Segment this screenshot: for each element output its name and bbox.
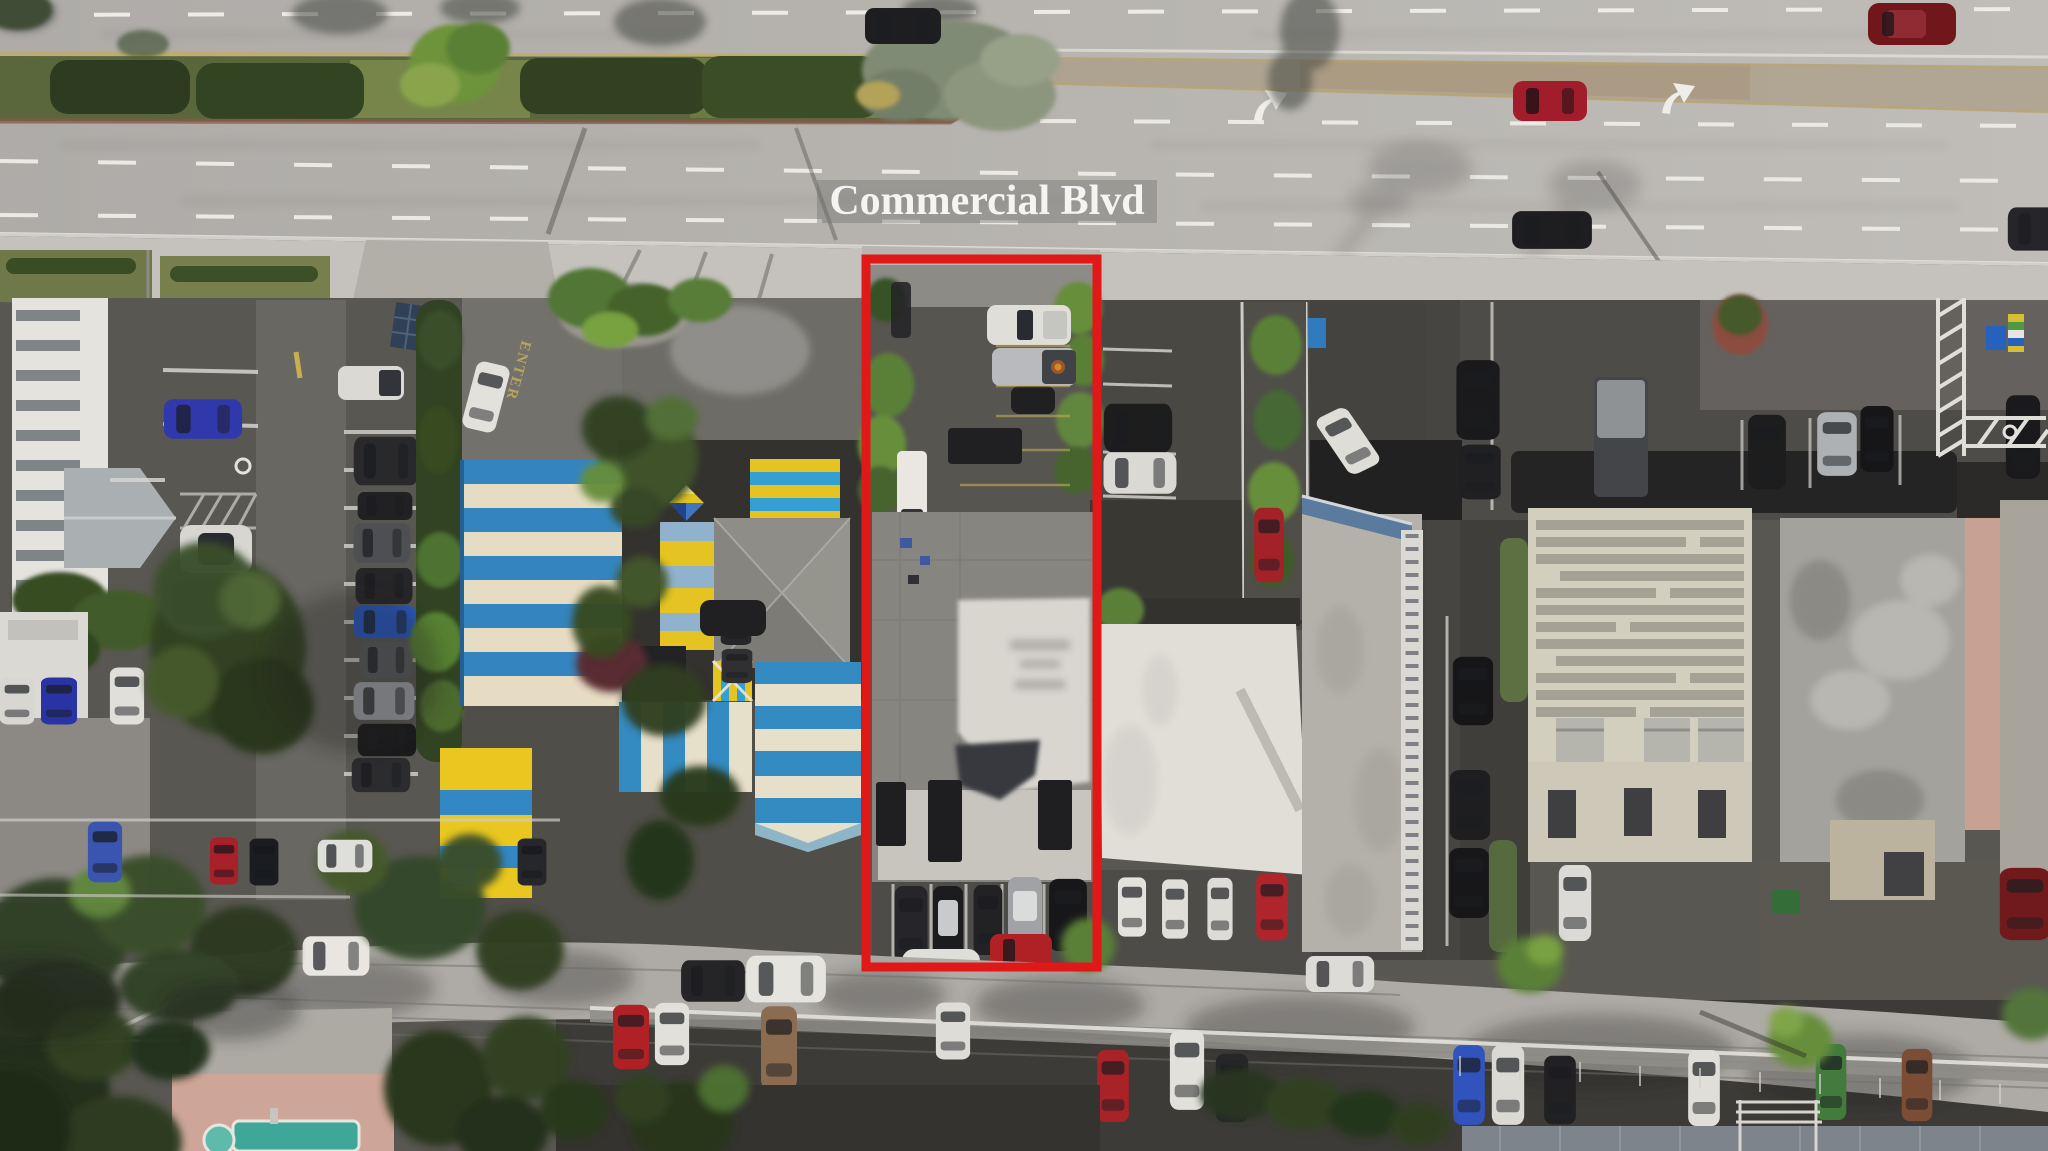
svg-text:Commercial Blvd: Commercial Blvd bbox=[829, 178, 1144, 224]
